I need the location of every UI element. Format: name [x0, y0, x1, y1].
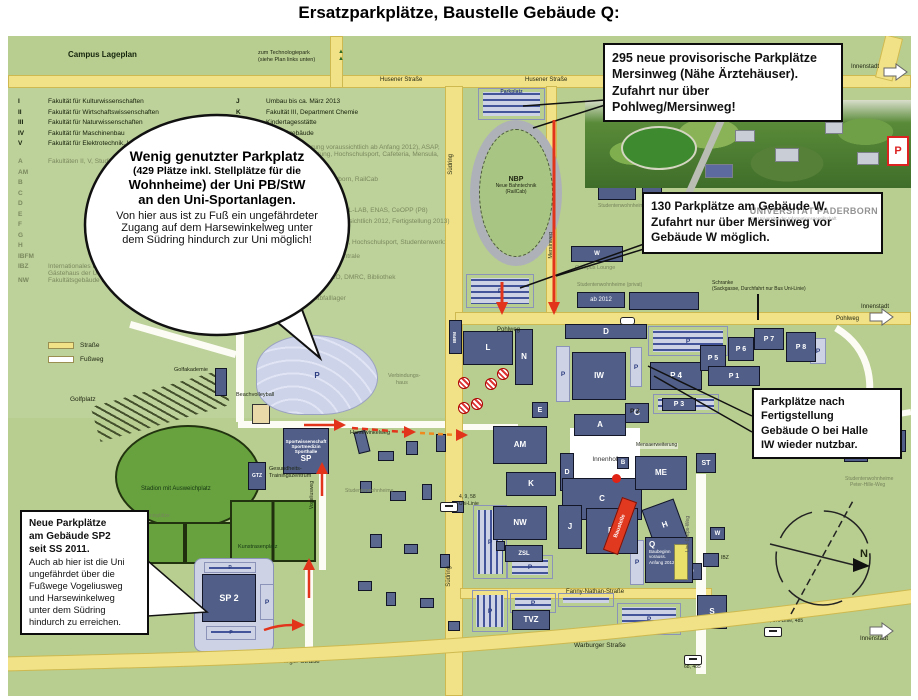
building-ibfm: IBFM — [449, 320, 462, 354]
legend-code: E — [18, 211, 48, 218]
golfakademie-label: Golfakademie — [174, 367, 208, 373]
callout-line: Zufahrt nur über Pohlweg/Mersinweg! — [612, 83, 834, 116]
legend-code: B — [18, 179, 48, 186]
photo-parking-tag: P — [887, 136, 909, 166]
gtz-label-2: Trainingszentrum — [269, 473, 311, 479]
street-warburger-label-2: Warburger Straße — [574, 642, 626, 649]
legend-strasse-label: Straße — [80, 342, 100, 349]
campus-map: NBP Neue Bahntechnik (RailCab) Parkplatz… — [8, 36, 911, 696]
building-n: N — [515, 329, 533, 385]
legend-code: TVZ — [236, 253, 266, 260]
innenstadt-label-bottom: Innenstadt — [860, 636, 888, 643]
callout-line: Zufahrt nur über Mersinweg vor — [651, 215, 874, 231]
callout-line: seit SS 2011. — [29, 543, 140, 556]
bus-stop-68-label: 68, Uni-Linie, 485 — [764, 619, 803, 625]
barrier-icon — [485, 378, 497, 390]
parking-sp2-right: P — [260, 584, 274, 620]
legend-code: G — [18, 232, 48, 239]
legend-fussweg: Fußweg — [48, 356, 103, 364]
building-golfakademie — [215, 368, 227, 396]
parking-lot-track-south: P — [466, 274, 534, 308]
compass-axis — [791, 499, 854, 614]
barrier-icon — [471, 398, 483, 410]
plan-heading: Campus Lageplan — [68, 50, 137, 59]
legend-strasse: Straße — [48, 342, 100, 350]
technologiepark-label-1: zum Technologiepark — [258, 50, 310, 56]
building-k: K — [506, 472, 556, 496]
building-p4: P 4 — [650, 362, 702, 390]
legend-row: NWFakultätsgebäude Naturwissenschaften — [18, 277, 230, 288]
street-lise-dreps-label: Lise-Dreps-Weg — [686, 516, 692, 552]
nbp-label: NBP Neue Bahntechnik (RailCab) — [476, 176, 556, 196]
legend-code: II — [18, 109, 48, 116]
dorm — [406, 441, 418, 455]
legend-label: International Office — [266, 263, 460, 270]
legend-code: ZSL — [236, 295, 266, 302]
building-iw: IW — [572, 352, 626, 400]
building-w-small: W — [710, 527, 725, 540]
schranke-label-2: (Sackgasse, Durchfahrt nur Bus Uni-Linie… — [712, 287, 806, 293]
legend-code: K — [236, 109, 266, 116]
building-p6: P 6 — [728, 337, 754, 361]
photo-building — [857, 152, 879, 165]
schranke-post — [757, 294, 759, 320]
building-e: E — [532, 402, 548, 418]
legend-code: IV — [18, 130, 48, 137]
legend-row: TVZTechnische Versorgungszentrale — [236, 253, 460, 264]
p-mark: P — [205, 563, 255, 572]
bus-uni-linie-label: Uni-Linie — [459, 502, 479, 508]
street-mersinweg-label: Mersinweg — [548, 232, 554, 259]
legend-label: Fakultät III, Department Chemie — [266, 109, 460, 116]
legend-row: IFakultät für Kulturwissenschaften — [18, 98, 230, 109]
legend-code: AM — [18, 169, 48, 176]
beachvolleyball-label: Beachvolleyball — [236, 392, 274, 398]
kunstrasen-label: Kunstrasenplatz — [238, 544, 277, 550]
legend-row: KFakultät III, Department Chemie — [236, 109, 460, 120]
legend-code: Kita — [236, 119, 266, 126]
building-small-1 — [496, 541, 505, 551]
legend-label: Fakultät für Maschinenbau — [48, 130, 230, 137]
legend-label: Fakultät für Elektrotechnik, Informatik … — [48, 140, 230, 147]
photo-building — [705, 164, 733, 178]
legend-row: IBZInternationales Begegnungszentrum, Je… — [18, 263, 230, 277]
callout-line: Gebäude W möglich. — [651, 230, 874, 246]
building-ibz-label: IBZ — [721, 556, 729, 562]
bus-stop-icon — [440, 502, 458, 512]
dorm — [436, 434, 446, 452]
building-w-campuslounge: W — [571, 246, 623, 262]
building-d-north: D — [565, 324, 647, 339]
p-mark: P — [473, 591, 507, 631]
legend-label: Fakultätsgebäude Naturwissenschaften — [48, 277, 230, 284]
p-mark: P — [557, 347, 569, 401]
callout-sp2-body: Auch ab hier ist die Uniungefährdet über… — [29, 556, 140, 628]
building-ab2012: ab 2012 — [577, 292, 625, 308]
parking-sp2-bottom: P — [206, 626, 256, 640]
legend-code: L — [236, 130, 266, 137]
building-sp-label: SP — [301, 455, 312, 463]
street-husener-label: Husener Straße — [380, 77, 422, 84]
dorm — [370, 534, 382, 548]
building-ibz — [703, 553, 719, 567]
legend-row: IIFakultät für Wirtschaftswissenschaften — [18, 109, 230, 120]
building-p8: P 8 — [786, 332, 816, 362]
legend-row: ZDPoststelle, Druckerei — [236, 284, 460, 295]
street-suedring-label-2: Südring — [446, 566, 453, 587]
footpath-vogeliusweg-south — [305, 568, 313, 652]
legend-right-strong: JUmbau bis ca. März 2013KFakultät III, D… — [236, 98, 460, 140]
building-tvz: TVZ — [512, 610, 550, 630]
bubble-sub3: an den Uni-Sportanlagen. — [100, 192, 334, 207]
dorm-ne-label-2: Peter-Hille-Weg — [850, 483, 885, 489]
legend-label: Hörsaalgebäude — [266, 130, 460, 137]
dorm-se-label: Studentenwohnheime — [345, 489, 393, 495]
baustelle-banner-label: Baustelle — [613, 513, 627, 538]
dorm — [422, 484, 432, 500]
callout-line: ungefährdet über die — [29, 568, 140, 580]
innenstadt-label-top: Innenstadt — [851, 64, 879, 71]
photo-building — [775, 148, 799, 162]
callout-line: Parkplätze nach — [761, 395, 893, 409]
legend-row: JUmbau bis ca. März 2013 — [236, 98, 460, 109]
callout-line: Gebäude O bei Halle — [761, 424, 893, 438]
compass-circle — [776, 511, 870, 605]
p-mark: P — [467, 275, 533, 307]
callout-line: Fertigstellung — [761, 409, 893, 423]
legend-row: IVFakultät für Maschinenbau — [18, 130, 230, 141]
legend-label: Technische Versorgungszentrale — [266, 253, 460, 260]
callout-line: unter dem Südring — [29, 604, 140, 616]
technologiepark-label-2: (siehe Plan links unten) — [258, 57, 315, 63]
compass-n-label: N — [860, 548, 868, 561]
building-s: S — [697, 595, 727, 629]
street-vogeliusweg-label: Vogeliusweg — [310, 481, 316, 509]
building-l: L — [463, 331, 513, 365]
callout-line: hindurch zu erreichen. — [29, 616, 140, 628]
parking-lot-sport-large: P — [256, 335, 378, 415]
road-swatch — [48, 342, 74, 349]
callout-line: und Harsewinkelweg — [29, 592, 140, 604]
legend-code: H — [18, 242, 48, 249]
bubble-text: Wenig genutzter Parkplatz (429 Plätze in… — [100, 148, 334, 246]
p-mark: P — [261, 585, 273, 619]
stadion-label: Stadion mit Ausweichplatz — [141, 486, 211, 493]
dorm — [386, 592, 396, 606]
building-ibfm-label: IBFM — [453, 332, 458, 343]
p-mark: P — [207, 627, 255, 639]
callout-130-parkplaetze: UNIVERSITÄT PADERBORN Die Universität de… — [642, 192, 883, 254]
building-p3: P 3 — [662, 398, 696, 411]
gtz-label-1: Gesundheits- — [269, 466, 302, 472]
bus-stop-icon — [764, 627, 782, 637]
building-q-note-3: Anfang 2012 — [649, 560, 675, 565]
building-a: A — [574, 414, 626, 436]
gate-icon — [620, 317, 635, 325]
building-p7: P 7 — [754, 328, 784, 350]
p-mark: P — [618, 604, 680, 634]
callout-130-lines: 130 Parkplätze am Gebäude W.Zufahrt nur … — [651, 199, 874, 246]
route-arrowhead — [292, 619, 305, 631]
legend-code: III — [18, 119, 48, 126]
callout-line: 295 neue provisorische Parkplätze — [612, 50, 834, 66]
building-nw: NW — [493, 506, 547, 540]
legend-fussweg-label: Fußweg — [80, 356, 103, 363]
callout-line: Fußwege Vogeliusweg — [29, 580, 140, 592]
legend-code: V — [18, 140, 48, 147]
barrier-icon — [458, 402, 470, 414]
barrier-icon — [497, 368, 509, 380]
parking-label: Parkplatz — [479, 89, 544, 119]
street-fanny-label: Fanny-Nathan-Straße — [566, 589, 624, 596]
bubble-body: Von hier aus ist zu Fuß ein ungefährdete… — [100, 210, 334, 246]
street-pohlweg-label-2: Pohlweg — [836, 316, 859, 323]
legend-label: Poststelle, Druckerei — [266, 284, 460, 291]
dorm-private-2 — [629, 292, 699, 310]
legend-code: I — [18, 98, 48, 105]
street-pohlweg-label: Pohlweg — [497, 327, 520, 334]
legend-code: F — [18, 221, 48, 228]
callout-line: Neue Parkplätze — [29, 517, 140, 530]
building-me: ME — [635, 456, 687, 490]
parking-strip-p4-west: P — [630, 347, 642, 387]
nbp-railcab: (RailCab) — [476, 190, 556, 196]
bubble-sub2: Wohnheime) der Uni PB/StW — [100, 177, 334, 192]
p-mark-large: P — [257, 336, 377, 414]
kunstrasenplatz — [230, 500, 316, 562]
legend-row: WFakultät I, II, IV, UNESCO, DMRC, Bibli… — [236, 274, 460, 285]
legend-code: W — [236, 274, 266, 281]
callout-sp2-strong: Neue Parkplätzeam Gebäude SP2seit SS 201… — [29, 517, 140, 556]
dorm — [448, 621, 460, 631]
verbindungshaus-label-1: Verbindungs- — [388, 373, 420, 379]
building-gtz: GTZ — [248, 462, 266, 490]
dorm-private-label: Studentenwohnheime (privat) — [577, 283, 642, 289]
legend-label: Fakultät für Kulturwissenschaften — [48, 98, 230, 105]
page-title: Ersatzparkplätze, Baustelle Gebäude Q: — [0, 3, 918, 23]
legend-label: Umbau bis ca. März 2013 — [266, 98, 460, 105]
photo-building — [735, 130, 755, 142]
building-b: B — [617, 457, 629, 469]
photo-building — [825, 122, 843, 134]
legend-left-strong: IFakultät für KulturwissenschaftenIIFaku… — [18, 98, 230, 151]
building-zsl: ZSL — [505, 545, 543, 562]
building-sp2: SP 2 — [202, 574, 256, 622]
legend-code: D — [18, 200, 48, 207]
building-j: J — [558, 505, 582, 549]
p2-label: P 2 — [630, 408, 640, 415]
legend-code: ZD — [236, 284, 266, 291]
verbindungshaus-label-2: haus — [396, 380, 408, 386]
dorm — [378, 451, 394, 461]
legend-code: IBFM — [18, 253, 48, 260]
legend-row: LHörsaalgebäude — [236, 130, 460, 141]
legend-code: J — [236, 98, 266, 105]
bus-stop-68-485-label: 68, 485 — [684, 665, 701, 671]
golfplatz-label: Golfplatz — [70, 396, 96, 403]
bus-lines-label: 4, 9, 58 — [459, 495, 476, 501]
building-p1: P 1 — [708, 366, 760, 386]
legend-row: IIIFakultät für Naturwissenschaften — [18, 119, 230, 130]
callout-line: Auch ab hier ist die Uni — [29, 556, 140, 568]
callout-sp2: Neue Parkplätzeam Gebäude SP2seit SS 201… — [20, 510, 149, 635]
parking-lot-north: Parkplatz — [478, 88, 545, 120]
legend-label: Fakultät I, II, IV, UNESCO, DMRC, Biblio… — [266, 274, 460, 281]
callout-line: am Gebäude SP2 — [29, 530, 140, 543]
legend-code: NW — [18, 277, 48, 284]
mensaerweiterung-label: Mensaerweiterung — [635, 443, 678, 449]
street-warburger-label: Warburger Straße — [268, 658, 320, 665]
building-am: AM — [493, 426, 547, 464]
path-swatch — [48, 356, 74, 363]
legend-code: C — [18, 190, 48, 197]
photo-sports-field — [621, 126, 697, 170]
dorm — [358, 581, 372, 591]
legend-code: W — [236, 263, 266, 270]
legend-label: Kindertagesstätte — [266, 119, 460, 126]
callout-line: IW wieder nutzbar. — [761, 438, 893, 452]
callout-line: Mersinweg (Nähe Ärztehäuser). — [612, 66, 834, 82]
bubble-title: Wenig genutzter Parkplatz — [100, 148, 334, 164]
callout-295-parkplaetze: 295 neue provisorische ParkplätzeMersinw… — [603, 43, 843, 122]
callout-gebaeude-o: Parkplätze nachFertigstellungGebäude O b… — [752, 388, 902, 459]
dorm-north-label: Studentenwohnheime — [598, 204, 646, 210]
compass-needle — [770, 544, 854, 565]
campus-lounge-label: Campus Lounge — [575, 265, 615, 271]
legend-label: Internationales Begegnungszentrum, Jenny… — [48, 263, 230, 277]
legend-code: A — [18, 158, 48, 165]
technologiepark-arrow-icon: ▲▲ — [338, 49, 344, 63]
p-mark: P — [631, 348, 641, 386]
legend-label: Fakultät für Wirtschaftswissenschaften — [48, 109, 230, 116]
parking-lot-s-1: P — [472, 590, 508, 632]
building-q-label: Q — [649, 541, 655, 549]
street-husener-label-2: Husener Straße — [525, 77, 567, 84]
marker-dot — [612, 474, 621, 483]
legend-code: IBZ — [18, 263, 48, 270]
legend-row: KitaKindertagesstätte — [236, 119, 460, 130]
legend-row: IBFM — [18, 253, 230, 264]
building-st: ST — [696, 453, 716, 473]
parking-lot-s-4: P — [617, 603, 681, 635]
callout-line: 130 Parkplätze am Gebäude W. — [651, 199, 874, 215]
legend-label: Zentrales Sonderabfalllager — [266, 295, 460, 302]
innenstadt-label-mid: Innenstadt — [861, 304, 889, 311]
street-harsewinkelweg-label: Harsewinkelweg — [350, 430, 390, 436]
legend-row: ZSLZentrales Sonderabfalllager — [236, 295, 460, 306]
dorm — [420, 598, 434, 608]
parking-sp2-top: P — [204, 562, 256, 573]
legend-row: WInternational Office — [236, 263, 460, 274]
legend-label: Fakultät für Naturwissenschaften — [48, 119, 230, 126]
barrier-icon — [458, 377, 470, 389]
parking-strip-iw: P — [556, 346, 570, 402]
dorm — [404, 544, 418, 554]
bubble-sub: (429 Plätze inkl. Stellplätze für die — [100, 165, 334, 177]
